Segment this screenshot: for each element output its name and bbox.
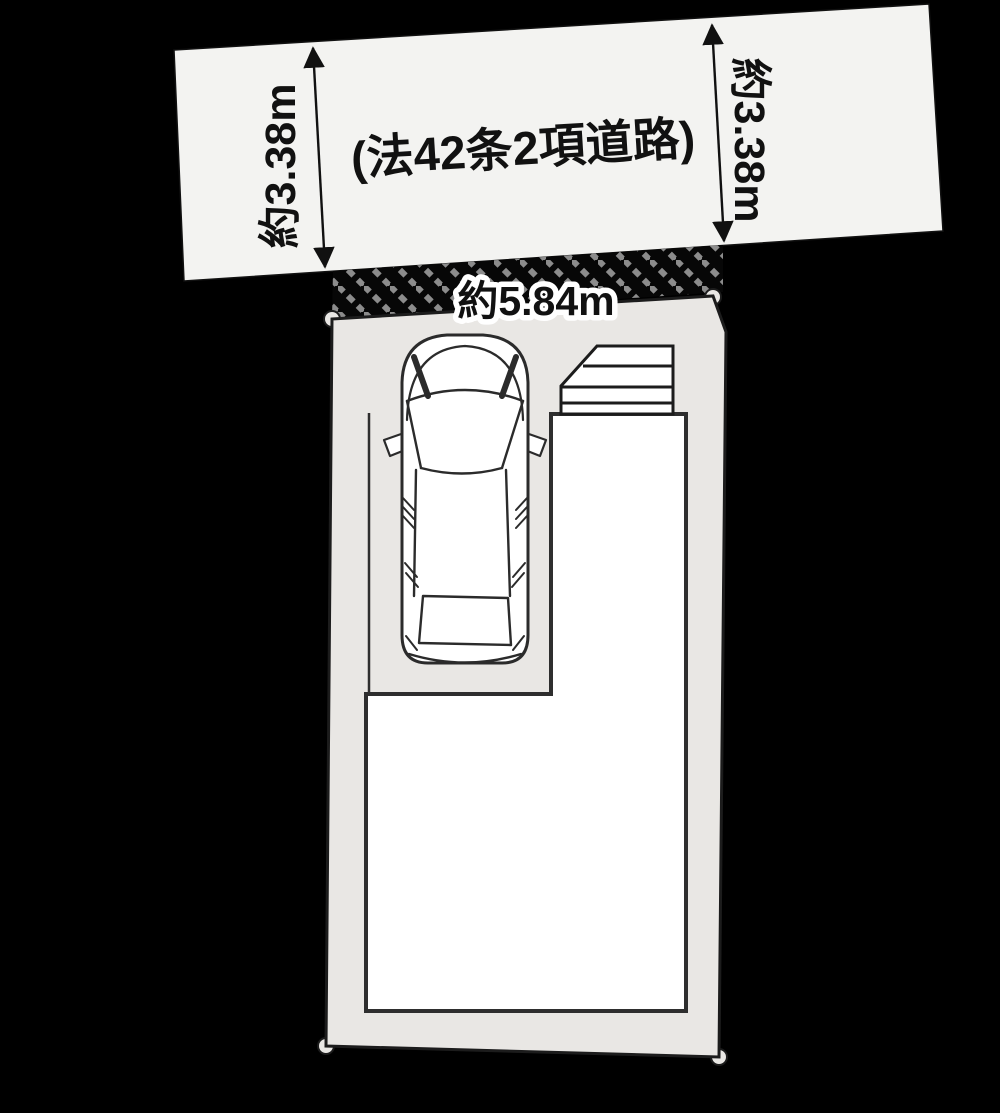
frontage-label: 約5.84m bbox=[457, 278, 614, 324]
site-plan: (法42条2項道路) 約3.38m 約3.38m bbox=[0, 0, 1000, 1113]
dimension-label: 約3.38m bbox=[725, 58, 773, 223]
car-illustration bbox=[384, 335, 546, 663]
site-plan-svg: (法42条2項道路) 約3.38m 約3.38m bbox=[0, 0, 1000, 1113]
dimension-label: 約3.38m bbox=[257, 84, 305, 249]
